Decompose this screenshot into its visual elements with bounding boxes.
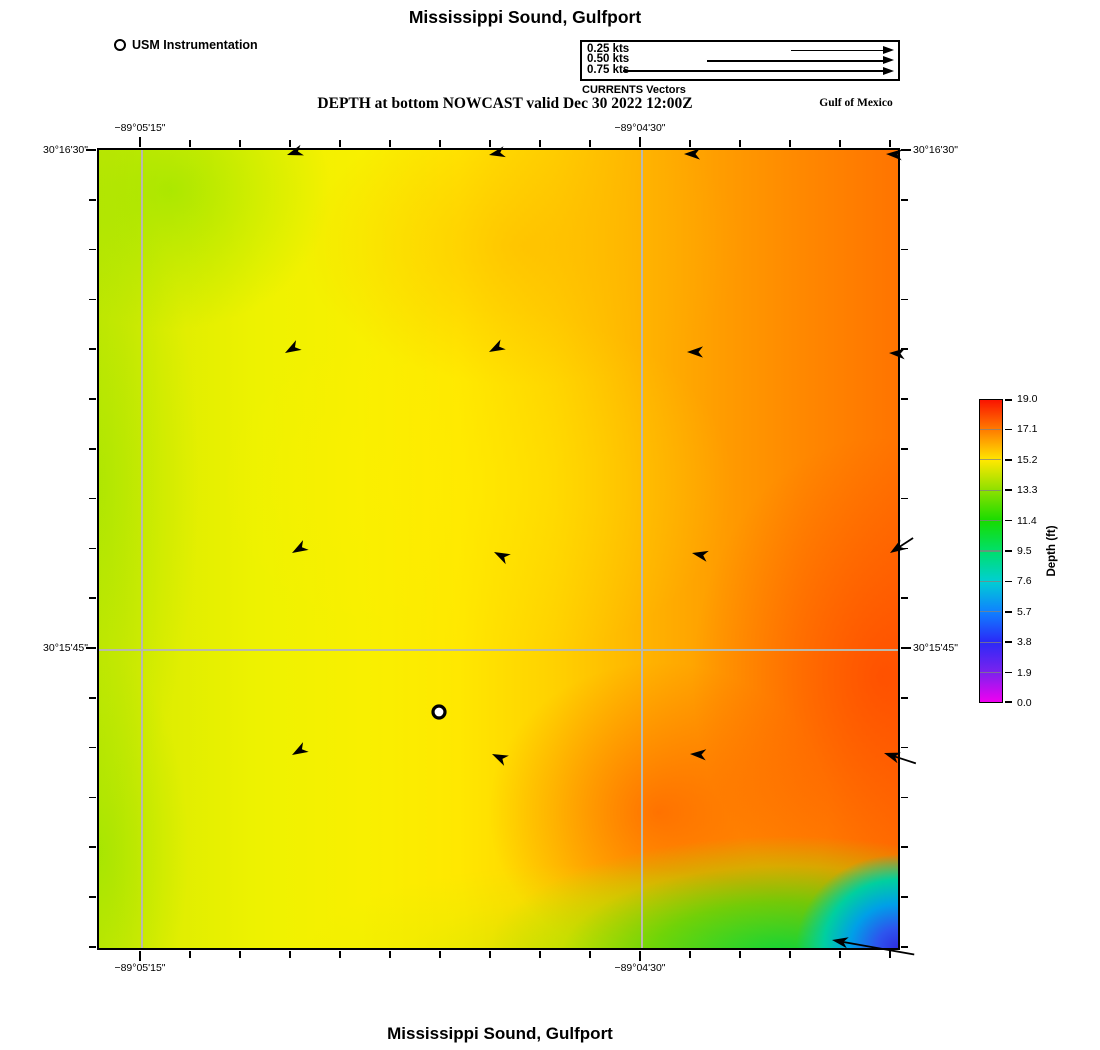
current-vector-arrow	[282, 340, 301, 358]
axis-tick	[901, 498, 908, 500]
colorbar-tick-label: 15.2	[1017, 454, 1037, 466]
current-vector-arrow	[886, 148, 903, 160]
colorbar-tick	[1005, 672, 1012, 674]
instrument-marker	[433, 706, 445, 718]
axis-tick	[639, 137, 641, 147]
axis-tick	[89, 797, 96, 799]
axis-tick	[901, 647, 911, 649]
colorbar-gridline	[980, 490, 1001, 491]
axis-tick	[901, 797, 908, 799]
axis-tick	[901, 299, 908, 301]
currents-vector-legend: 0.25 kts0.50 kts0.75 kts	[580, 40, 900, 81]
colorbar-gridline	[980, 581, 1001, 582]
axis-tick	[389, 140, 391, 147]
colorbar-gridline	[980, 520, 1001, 521]
gulf-of-mexico-label: Gulf of Mexico	[776, 97, 936, 109]
axis-tick	[89, 299, 96, 301]
colorbar-tick	[1005, 520, 1012, 522]
current-vector-arrow	[490, 749, 509, 766]
axis-tick	[89, 398, 96, 400]
colorbar-tick	[1005, 581, 1012, 583]
axis-tick	[901, 747, 908, 749]
axis-tick	[89, 498, 96, 500]
y-axis-label-left-mid: 30°15'45"	[28, 642, 88, 654]
axis-tick	[89, 846, 96, 848]
axis-tick	[901, 846, 908, 848]
colorbar-tick-label: 11.4	[1017, 514, 1037, 526]
vector-scale-arrow	[623, 66, 894, 77]
x-axis-label-bottom-left: −89°05'15"	[90, 962, 190, 974]
axis-tick	[139, 137, 141, 147]
axis-tick	[339, 140, 341, 147]
colorbar-tick	[1005, 701, 1012, 703]
axis-tick	[589, 140, 591, 147]
x-axis-label-top-left: −89°05'15"	[90, 122, 190, 134]
vector-scale-row: 0.50 kts	[582, 55, 898, 65]
colorbar-tick	[1005, 399, 1012, 401]
axis-tick	[539, 140, 541, 147]
colorbar-tick-label: 9.5	[1017, 545, 1032, 557]
figure-canvas: Mississippi Sound, Gulfport USM Instrume…	[0, 0, 1100, 1050]
colorbar-tick	[1005, 611, 1012, 613]
colorbar-tick-label: 3.8	[1017, 636, 1032, 648]
instrumentation-legend-label: USM Instrumentation	[132, 38, 258, 52]
current-vector-arrow	[687, 346, 703, 357]
axis-tick	[139, 951, 141, 961]
current-vector-arrow	[491, 547, 510, 564]
axis-tick	[89, 199, 96, 201]
current-vector-arrow	[691, 548, 709, 562]
axis-tick	[901, 199, 908, 201]
colorbar-tick-label: 17.1	[1017, 423, 1037, 435]
figure-title-top: Mississippi Sound, Gulfport	[0, 7, 1050, 28]
colorbar-tick-label: 1.9	[1017, 666, 1032, 678]
current-vector-arrow	[285, 145, 304, 161]
axis-tick	[89, 747, 96, 749]
axis-tick	[489, 951, 491, 958]
axis-tick	[89, 249, 96, 251]
colorbar-tick	[1005, 489, 1012, 491]
axis-tick	[901, 398, 908, 400]
axis-tick	[901, 249, 908, 251]
x-axis-label-bottom-right: −89°04'30"	[590, 962, 690, 974]
colorbar-title: Depth (ft)	[1046, 525, 1058, 576]
axis-tick	[789, 140, 791, 147]
axis-tick	[539, 951, 541, 958]
colorbar-tick-label: 5.7	[1017, 606, 1032, 618]
colorbar-gridline	[980, 459, 1001, 460]
axis-tick	[89, 348, 96, 350]
current-vector-arrow	[887, 533, 916, 557]
axis-tick	[239, 951, 241, 958]
colorbar-tick	[1005, 641, 1012, 643]
axis-tick	[189, 951, 191, 958]
axis-tick	[86, 647, 96, 649]
axis-tick	[739, 951, 741, 958]
y-axis-label-right-top: 30°16'30"	[913, 144, 958, 156]
axis-tick	[739, 140, 741, 147]
colorbar-tick	[1005, 550, 1012, 552]
colorbar-tick	[1005, 459, 1012, 461]
colorbar-gridline	[980, 550, 1001, 551]
axis-tick	[639, 951, 641, 961]
axis-tick	[689, 140, 691, 147]
axis-tick	[589, 951, 591, 958]
axis-tick	[289, 140, 291, 147]
vectors-layer	[99, 150, 898, 948]
axis-tick	[89, 548, 96, 550]
instrumentation-circle-icon	[114, 39, 126, 51]
axis-tick	[901, 548, 908, 550]
axis-tick	[389, 951, 391, 958]
depth-heatmap-map	[97, 148, 900, 950]
axis-tick	[89, 697, 96, 699]
current-vector-arrow	[289, 540, 308, 558]
axis-tick	[289, 951, 291, 958]
axis-tick	[86, 149, 96, 151]
y-axis-label-left-top: 30°16'30"	[28, 144, 88, 156]
axis-tick	[339, 951, 341, 958]
axis-tick	[89, 597, 96, 599]
axis-tick	[239, 140, 241, 147]
colorbar-gridline	[980, 642, 1001, 643]
colorbar: 19.017.115.213.311.49.57.65.73.81.90.0	[979, 399, 1099, 703]
axis-tick	[439, 140, 441, 147]
axis-tick	[889, 140, 891, 147]
colorbar-gridline	[980, 429, 1001, 430]
x-axis-label-top-right: −89°04'30"	[590, 122, 690, 134]
figure-title-bottom: Mississippi Sound, Gulfport	[0, 1024, 1000, 1044]
axis-tick	[839, 140, 841, 147]
current-vector-arrow	[488, 146, 506, 160]
axis-tick	[439, 951, 441, 958]
vector-scale-row: 0.75 kts	[582, 66, 898, 76]
axis-tick	[901, 348, 908, 350]
axis-tick	[901, 946, 908, 948]
colorbar-tick-label: 13.3	[1017, 484, 1037, 496]
axis-tick	[901, 149, 911, 151]
axis-tick	[901, 597, 908, 599]
colorbar-gridline	[980, 672, 1001, 673]
current-vector-arrow	[882, 748, 917, 769]
vector-scale-row: 0.25 kts	[582, 45, 898, 55]
axis-tick	[839, 951, 841, 958]
axis-tick	[789, 951, 791, 958]
axis-tick	[901, 448, 908, 450]
colorbar-gridline	[980, 611, 1001, 612]
current-vector-arrow	[486, 340, 505, 357]
axis-tick	[489, 140, 491, 147]
axis-tick	[89, 946, 96, 948]
axis-tick	[189, 140, 191, 147]
current-vector-arrow	[690, 748, 707, 760]
colorbar-tick-label: 7.6	[1017, 575, 1032, 587]
axis-tick	[889, 951, 891, 958]
colorbar-tick-label: 0.0	[1017, 697, 1032, 709]
axis-tick	[89, 448, 96, 450]
colorbar-tick-label: 19.0	[1017, 393, 1037, 405]
current-vector-arrow	[684, 148, 700, 159]
y-axis-label-right-mid: 30°15'45"	[913, 642, 958, 654]
colorbar-tick	[1005, 429, 1012, 431]
axis-tick	[689, 951, 691, 958]
axis-tick	[901, 697, 908, 699]
axis-tick	[89, 896, 96, 898]
current-vector-arrow	[289, 742, 308, 760]
axis-tick	[901, 896, 908, 898]
